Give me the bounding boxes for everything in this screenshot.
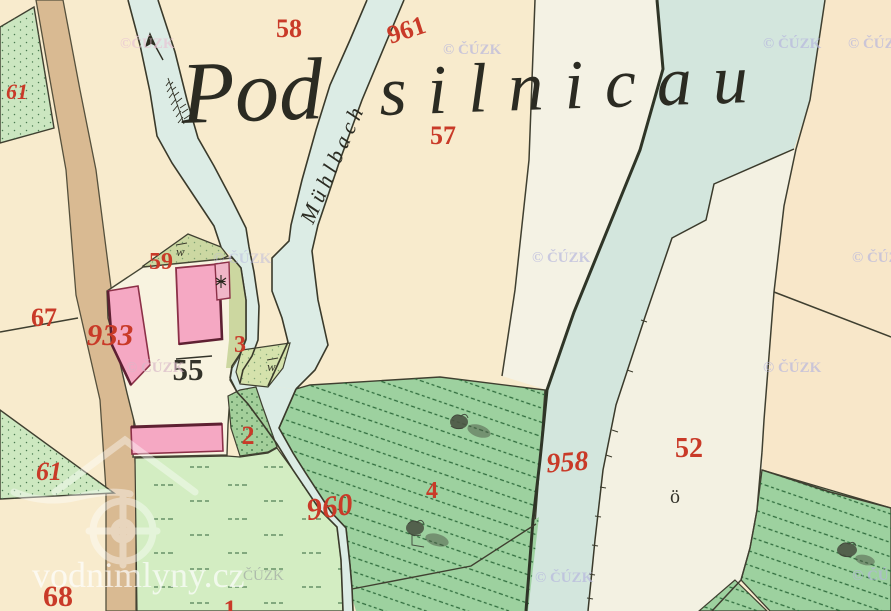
svg-text:933: 933: [87, 317, 134, 352]
svg-text:61: 61: [36, 457, 62, 486]
svg-text:ö: ö: [670, 486, 680, 508]
svg-text:67: 67: [31, 303, 57, 332]
svg-text:vodnimlyny.cz: vodnimlyny.cz: [32, 555, 245, 595]
svg-text:59: 59: [149, 249, 173, 275]
svg-text:57: 57: [430, 121, 456, 150]
svg-text:© ČÚ: © ČÚ: [852, 567, 889, 584]
svg-text:958: 958: [545, 446, 589, 480]
svg-text:© ČÚZK: © ČÚZK: [443, 41, 502, 58]
svg-text:w: w: [176, 244, 185, 259]
svg-text:58: 58: [276, 14, 302, 43]
svg-text:2: 2: [242, 421, 255, 450]
svg-text:© ČÚZK: © ČÚZK: [763, 35, 822, 52]
svg-text:61: 61: [6, 79, 28, 104]
svg-text:©ČÚZK: ©ČÚZK: [120, 35, 175, 52]
svg-text:© ČÚZK: © ČÚZK: [848, 35, 891, 52]
svg-text:© ČÚZK: © ČÚZK: [126, 359, 185, 376]
svg-text:3: 3: [234, 332, 246, 358]
svg-text:Pod: Pod: [178, 41, 325, 143]
svg-text:© ČÚZK: © ČÚZK: [852, 249, 891, 266]
svg-text:© ČÚZK: © ČÚZK: [213, 250, 272, 267]
svg-text:© ČÚZK: © ČÚZK: [532, 249, 591, 266]
svg-text:1: 1: [224, 595, 237, 611]
svg-text:52: 52: [675, 433, 703, 464]
svg-text:w: w: [267, 359, 276, 374]
svg-text:© ČÚZK: © ČÚZK: [763, 359, 822, 376]
svg-text:960: 960: [304, 486, 355, 527]
svg-text:ČÚZK: ČÚZK: [243, 567, 284, 584]
svg-text:© ČÚZK: © ČÚZK: [535, 569, 594, 586]
svg-text:silnicau: silnicau: [378, 40, 770, 131]
svg-text:4: 4: [426, 478, 438, 504]
